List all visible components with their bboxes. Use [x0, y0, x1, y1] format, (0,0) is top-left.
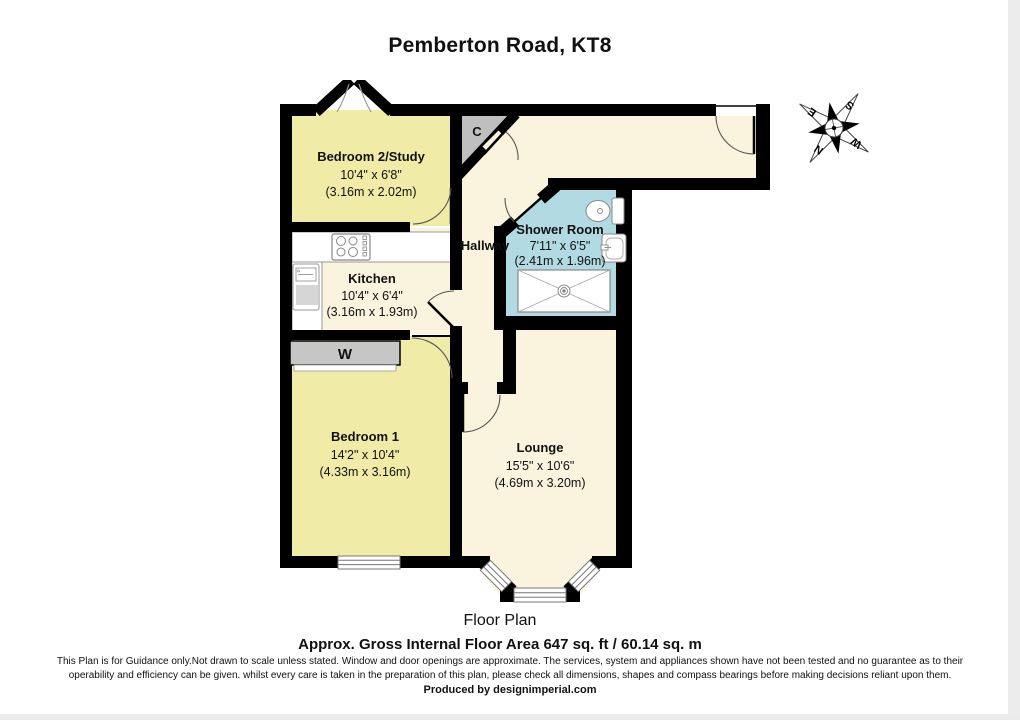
disclaimer-line-1: This Plan is for Guidance only.Not drawn… — [10, 656, 1010, 667]
floorplan-drawing: W — [0, 80, 1020, 620]
kitchen-name: Kitchen — [348, 271, 396, 286]
boiler-icon — [293, 264, 319, 310]
hallway-name: Hallway — [461, 238, 510, 253]
bedroom1-size-ft: 14'2" x 10'4" — [331, 448, 400, 462]
compass-rose: N E S W — [776, 80, 893, 186]
bottom-edge-strip — [0, 714, 1020, 720]
kitchen-counter-top — [292, 232, 452, 262]
kitchen-size-ft: 10'4" x 6'4" — [341, 289, 403, 303]
floorplan-page: Pemberton Road, KT8 — [0, 0, 1020, 720]
bedroom2-name: Bedroom 2/Study — [317, 149, 425, 164]
right-edge-strip — [1008, 0, 1020, 720]
lounge-name: Lounge — [517, 440, 564, 455]
shower-room-size-m: (2.41m x 1.96m) — [514, 254, 605, 268]
bay-window-center — [514, 588, 566, 602]
kitchen-size-m: (3.16m x 1.93m) — [326, 305, 417, 319]
lounge-size-ft: 15'5" x 10'6" — [506, 459, 575, 473]
shower-tray-icon — [518, 270, 610, 312]
bedroom2-size-m: (3.16m x 2.02m) — [325, 185, 416, 199]
produced-by-line: Produced by designimperial.com — [10, 684, 1010, 696]
gross-area-line: Approx. Gross Internal Floor Area 647 sq… — [0, 636, 1000, 653]
bedroom1-window — [338, 556, 400, 569]
hob-icon — [332, 234, 370, 260]
wardrobe: W — [290, 341, 400, 371]
wardrobe-label: W — [338, 346, 353, 363]
shower-room-size-ft: 7'11" x 6'5" — [530, 239, 591, 253]
page-title: Pemberton Road, KT8 — [0, 34, 1000, 58]
disclaimer-line-2: operability and efficiency can be given.… — [10, 670, 1010, 681]
lounge-size-m: (4.69m x 3.20m) — [494, 476, 585, 490]
bedroom2-size-ft: 10'4" x 6'8" — [340, 168, 402, 182]
cupboard-label: C — [472, 124, 482, 139]
floor-plan-caption: Floor Plan — [0, 612, 1000, 630]
bedroom1-name: Bedroom 1 — [331, 429, 399, 444]
shower-room-name: Shower Room — [516, 222, 603, 237]
toilet-icon — [586, 198, 624, 224]
bedroom1-size-m: (4.33m x 3.16m) — [319, 465, 410, 479]
